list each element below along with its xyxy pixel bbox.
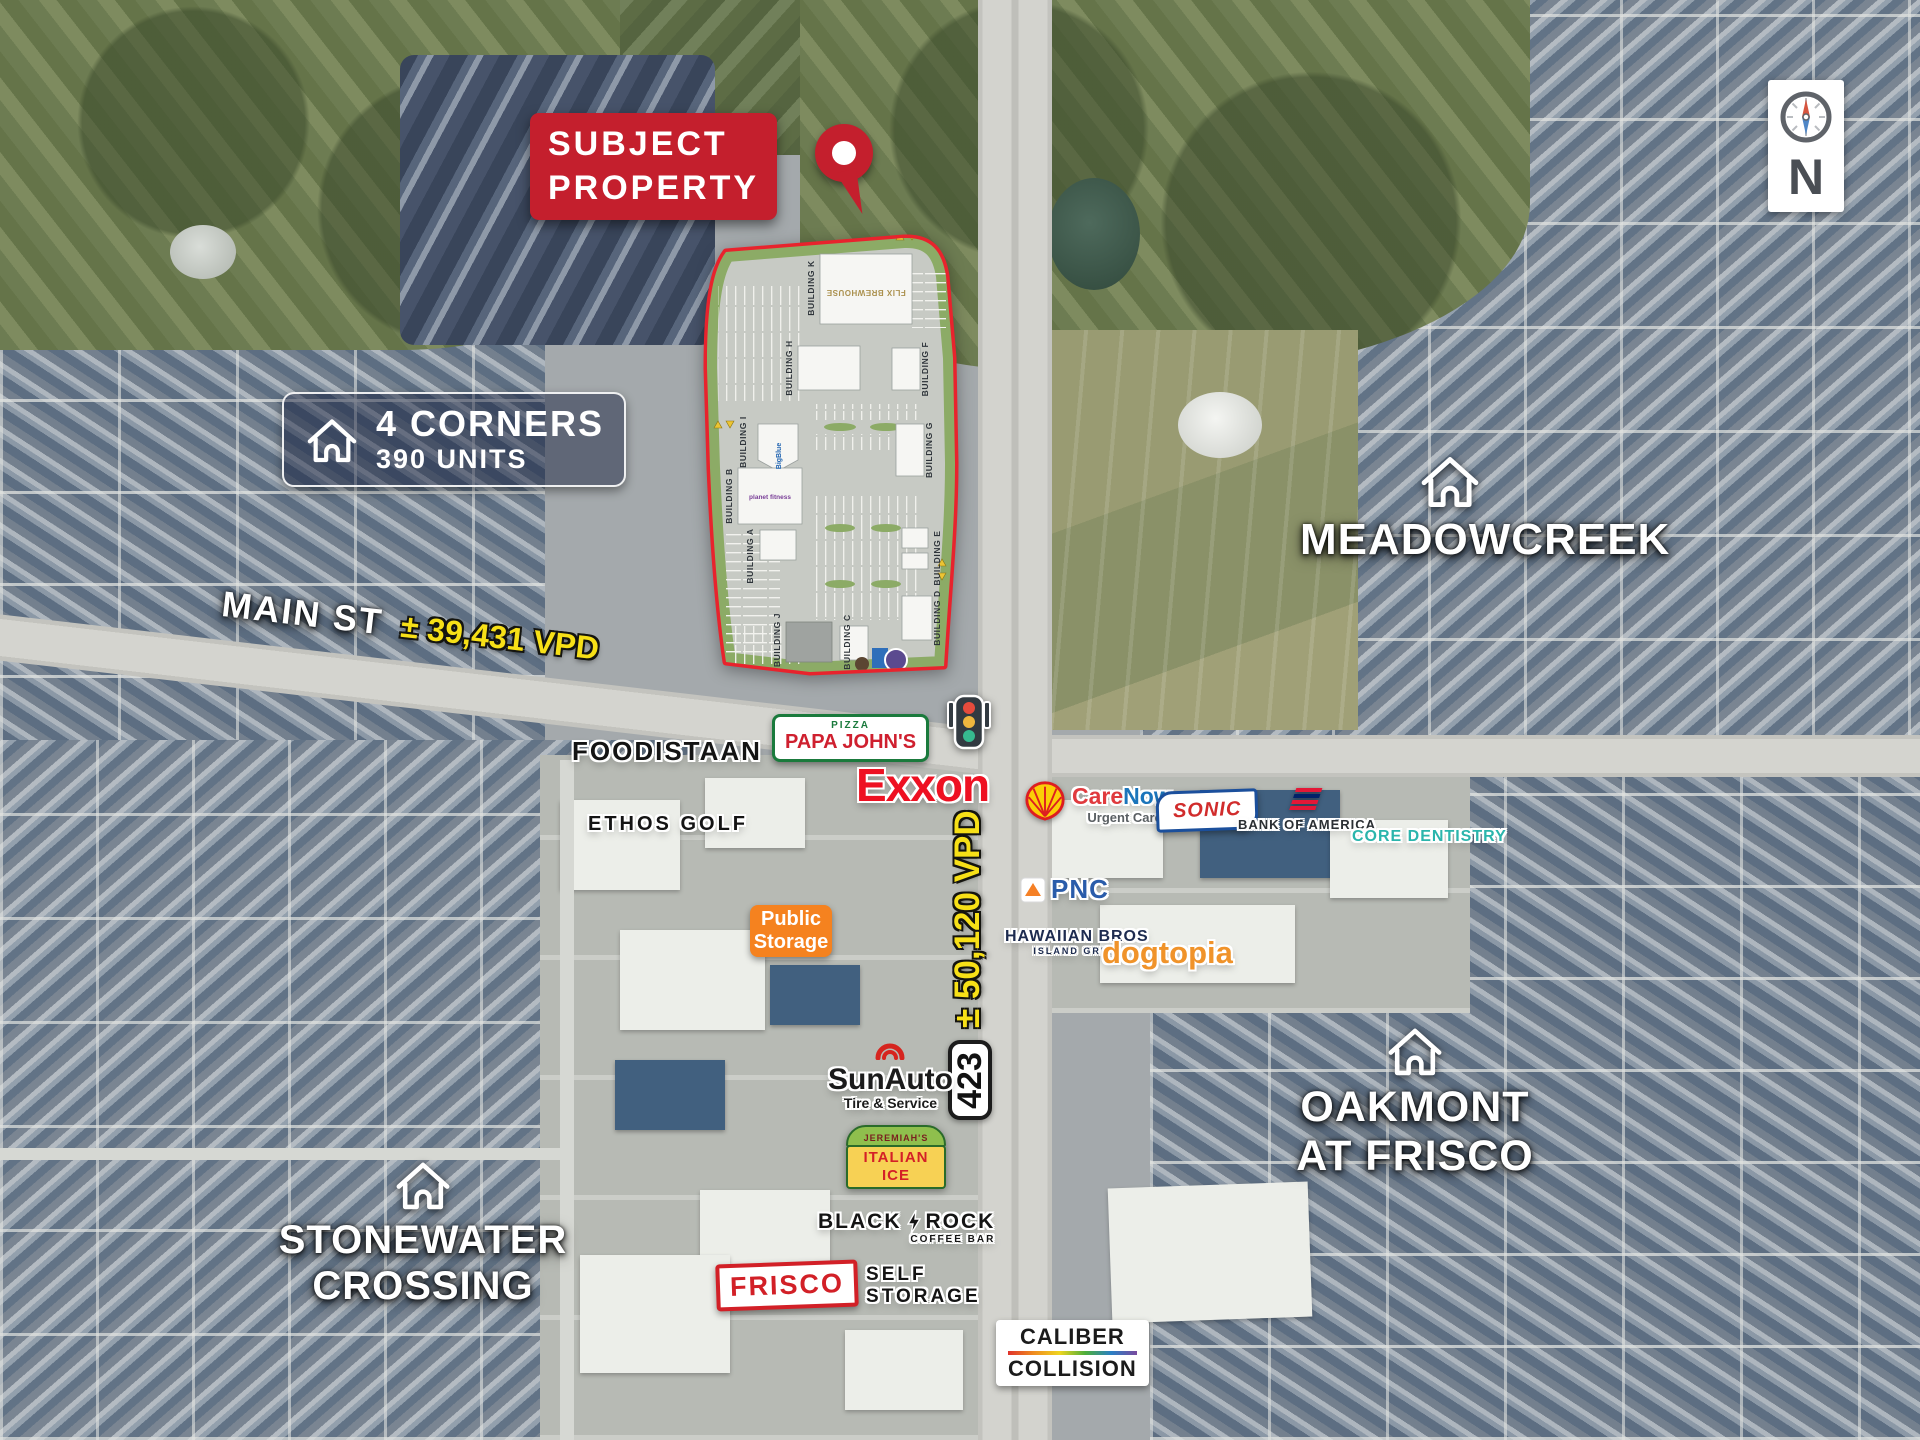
industrial-building <box>620 930 765 1030</box>
building-i-label: BUILDING I <box>738 416 748 468</box>
jeremiahs-top: JEREMIAH'S <box>852 1133 940 1143</box>
blackrock-logo: BLACK ROCK COFFEE BAR <box>818 1210 995 1245</box>
pin-dot <box>832 141 856 165</box>
frisco-box: FRISCO <box>729 1268 844 1302</box>
blackrock-word2: ROCK <box>926 1210 996 1234</box>
papa-johns-logo: PIZZA PAPA JOHN'S <box>772 714 929 762</box>
foodistaan-logo: FOODISTAAN <box>572 736 762 767</box>
industrial-building <box>770 965 860 1025</box>
road-main-st-east <box>1035 735 1920 777</box>
label-oakmont: OAKMONT AT FRISCO <box>1265 1022 1565 1182</box>
public-storage-line1: Public <box>750 908 832 931</box>
building-e-label: BUILDING E <box>932 530 942 585</box>
industrial-building <box>615 1060 725 1130</box>
subject-line1: SUBJECT <box>548 123 759 167</box>
building-d-label: BUILDING D <box>932 590 942 646</box>
house-icon <box>304 413 360 465</box>
caliber-line1: CALIBER <box>1008 1325 1137 1349</box>
sunauto-logo: SunAuto Tire & Service <box>828 1040 953 1111</box>
traffic-light-icon <box>944 694 994 750</box>
aerial-map: FLIX BREWHOUSE BigBlue planet fitness BU… <box>0 0 1920 1440</box>
pnc-logo: PNC <box>1020 874 1109 905</box>
subject-property-pin <box>815 124 873 182</box>
road-minor <box>560 760 574 1440</box>
building-d-footprint <box>902 596 932 640</box>
carenow-care: Care <box>1072 783 1123 809</box>
caliber-building <box>1108 1182 1313 1324</box>
pnc-name: PNC <box>1051 874 1109 905</box>
bank-of-america-logo: BANK OF AMERICA <box>1238 786 1376 832</box>
building-e-footprint <box>902 528 928 548</box>
house-icon <box>1417 450 1483 510</box>
papa-johns-name: PAPA JOHN'S <box>785 731 916 754</box>
public-storage-line2: Storage <box>750 931 832 954</box>
exxon-logo: Exxon <box>856 758 989 812</box>
industrial-building <box>845 1330 963 1410</box>
sonic-name: SONIC <box>1173 798 1242 822</box>
blackrock-sub: COFFEE BAR <box>818 1234 995 1245</box>
four-corners-units: 390 UNITS <box>376 444 604 475</box>
tenant-sign-purple <box>885 649 907 671</box>
building-a-label: BUILDING A <box>745 528 755 583</box>
four-corners-badge: 4 CORNERS 390 UNITS <box>282 392 626 487</box>
label-meadowcreek: MEADOWCREEK <box>1300 450 1600 565</box>
dome-building <box>1178 392 1262 458</box>
building-h-footprint <box>798 346 860 390</box>
stonewater-line2: CROSSING <box>273 1263 573 1309</box>
hwy-423-shield: 423 <box>948 1040 992 1120</box>
core-dentistry-logo: CORE DENTISTRY <box>1352 828 1507 846</box>
four-corners-name: 4 CORNERS <box>376 404 604 444</box>
jeremiahs-name: ITALIAN ICE <box>863 1149 928 1184</box>
building-e2-footprint <box>902 553 928 569</box>
blackrock-word1: BLACK <box>818 1210 902 1234</box>
tenant-planet-fitness: planet fitness <box>749 494 791 501</box>
building-a-footprint <box>760 530 796 560</box>
stonewater-line1: STONEWATER <box>273 1217 573 1263</box>
bofa-flag-icon <box>1285 786 1329 812</box>
frisco-self: SELF <box>866 1264 981 1286</box>
pnc-emblem-icon <box>1020 877 1046 903</box>
oakmont-line2: AT FRISCO <box>1265 1132 1565 1181</box>
hwy-423-number: 423 <box>951 1052 990 1109</box>
building-f-label: BUILDING F <box>920 342 930 397</box>
building-b-label: BUILDING B <box>724 468 734 524</box>
building-j-footprint <box>786 622 832 662</box>
tenant-sign-brown <box>855 657 869 671</box>
lightning-bolt-icon <box>906 1210 922 1234</box>
caliber-rainbow-bar <box>1008 1351 1137 1355</box>
ethos-golf-logo: ETHOS GOLF <box>588 813 748 836</box>
meadowcreek-name: MEADOWCREEK <box>1300 515 1600 565</box>
building-g-footprint <box>896 424 924 476</box>
sunauto-name: SunAuto <box>828 1065 953 1095</box>
house-icon <box>1384 1022 1446 1078</box>
frisco-storage-logo: FRISCO SELF STORAGE <box>716 1262 981 1309</box>
jeremiahs-logo: JEREMIAH'S ITALIAN ICE <box>846 1125 946 1189</box>
building-h-label: BUILDING H <box>784 340 794 396</box>
hwy-423-vpd: ± 50,120 VPD <box>948 788 988 1028</box>
building-f-footprint <box>892 348 920 390</box>
industrial-building <box>580 1255 730 1373</box>
pond-park <box>170 225 236 279</box>
sunauto-arcs-icon <box>868 1040 912 1060</box>
frisco-storage: STORAGE <box>866 1286 981 1308</box>
house-icon <box>392 1156 454 1212</box>
dogtopia-logo: dogtopia <box>1102 935 1233 971</box>
building-c-label: BUILDING C <box>842 614 852 670</box>
building-g-label: BUILDING G <box>924 422 934 478</box>
building-k-label: BUILDING K <box>806 260 816 316</box>
caliber-line2: COLLISION <box>1008 1357 1137 1381</box>
compass-n-label: N <box>1788 152 1824 202</box>
pond-east <box>1048 178 1140 290</box>
subject-property-banner: SUBJECT PROPERTY <box>530 113 777 220</box>
public-storage-logo: Public Storage <box>750 905 832 957</box>
label-stonewater: STONEWATER CROSSING <box>273 1156 573 1309</box>
compass-rose-icon <box>1779 90 1833 144</box>
building-j-label: BUILDING J <box>772 613 782 667</box>
sunauto-sub: Tire & Service <box>828 1095 953 1111</box>
oakmont-line1: OAKMONT <box>1265 1083 1565 1132</box>
compass: N <box>1768 80 1844 212</box>
subject-property-site-plan: FLIX BREWHOUSE BigBlue planet fitness BU… <box>690 228 980 680</box>
shell-logo <box>1022 780 1068 822</box>
tenant-flix-brewhouse: FLIX BREWHOUSE <box>826 288 906 297</box>
subject-line2: PROPERTY <box>548 167 759 211</box>
papa-johns-pizza: PIZZA <box>785 720 916 731</box>
tenant-bigblue: BigBlue <box>776 443 783 470</box>
caliber-logo: CALIBER COLLISION <box>996 1320 1149 1386</box>
